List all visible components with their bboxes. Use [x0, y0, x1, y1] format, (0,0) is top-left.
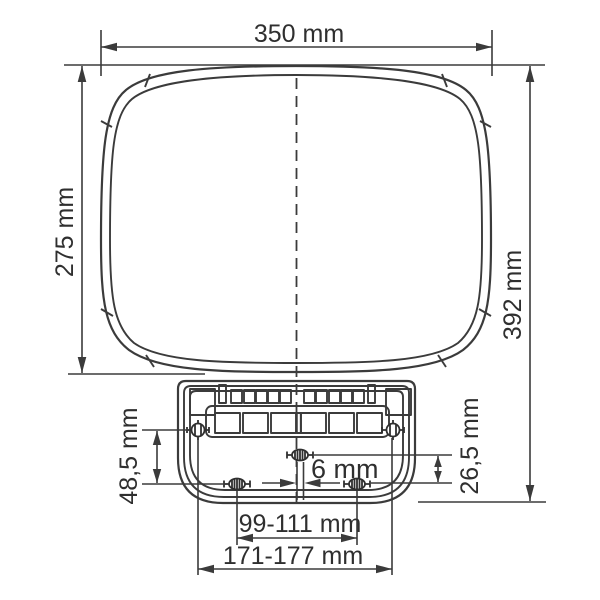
device-body [101, 66, 491, 372]
dim-26-5-label: 26,5 mm [456, 397, 484, 494]
dimension-48-5mm: 48,5 mm [115, 407, 228, 504]
dim-275-label: 275 mm [51, 187, 79, 277]
technical-drawing: 350 mm 275 mm 392 mm 48,5 mm 26,5 mm [0, 0, 600, 600]
arrowhead-left [101, 43, 117, 52]
dim-6-label: 6 mm [311, 454, 379, 484]
dimension-350mm: 350 mm [101, 20, 492, 76]
dimension-275mm: 275 mm [51, 66, 205, 374]
dimension-99-111mm: 99-111 mm [237, 491, 361, 545]
terminal-block [206, 406, 389, 437]
body-outer-outline [101, 66, 491, 372]
drawing-canvas: 350 mm 275 mm 392 mm 48,5 mm 26,5 mm [0, 0, 600, 600]
bracket-corner-box-left [190, 389, 215, 415]
dim-99-111-label: 99-111 mm [239, 510, 362, 538]
screw-hole-center [287, 450, 313, 461]
dimension-6mm: 6 mm [262, 454, 379, 500]
dim-350-label: 350 mm [254, 20, 344, 48]
arrowhead-right [476, 43, 492, 52]
dim-48-5-label: 48,5 mm [115, 407, 143, 504]
dim-171-177-label: 171-177 mm [223, 542, 363, 570]
dim-392-label: 392 mm [499, 250, 527, 340]
